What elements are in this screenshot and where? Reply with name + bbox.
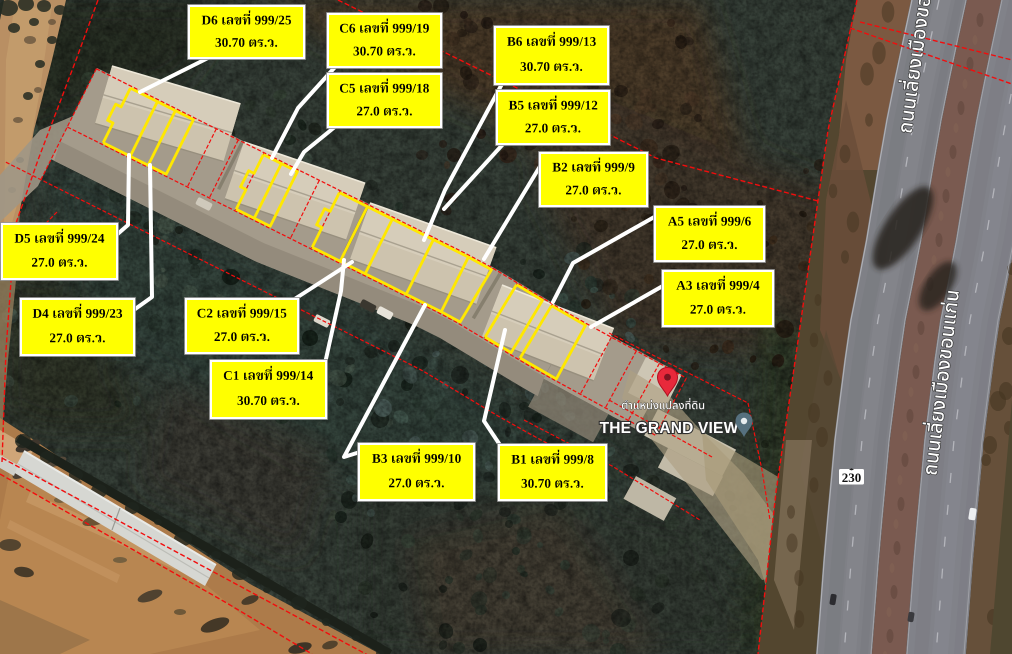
svg-text:230: 230 (842, 470, 862, 485)
svg-text:THE GRAND VIEW: THE GRAND VIEW (600, 420, 739, 437)
